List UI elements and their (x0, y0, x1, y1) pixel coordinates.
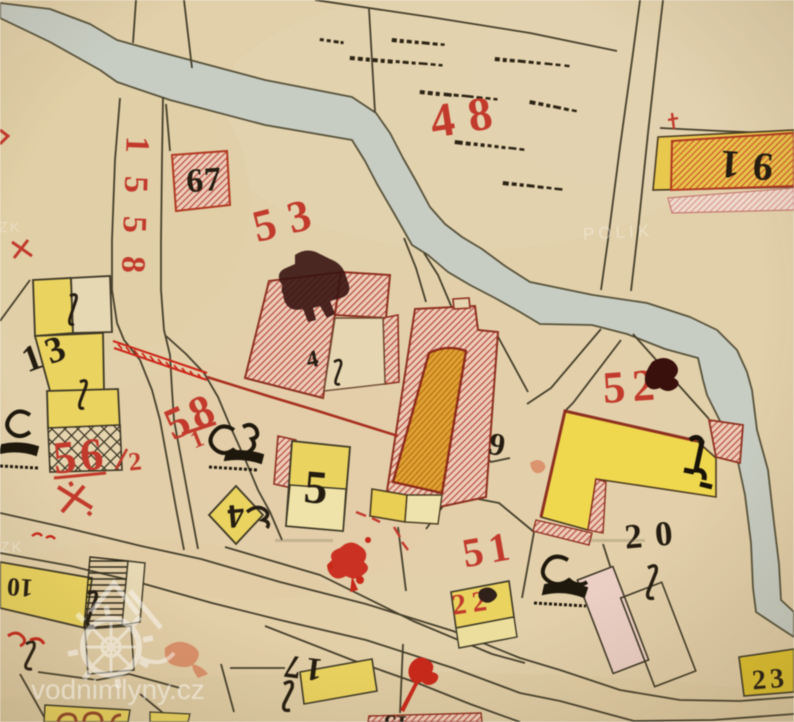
svg-text:vodnimlyny.cz: vodnimlyny.cz (31, 674, 205, 705)
